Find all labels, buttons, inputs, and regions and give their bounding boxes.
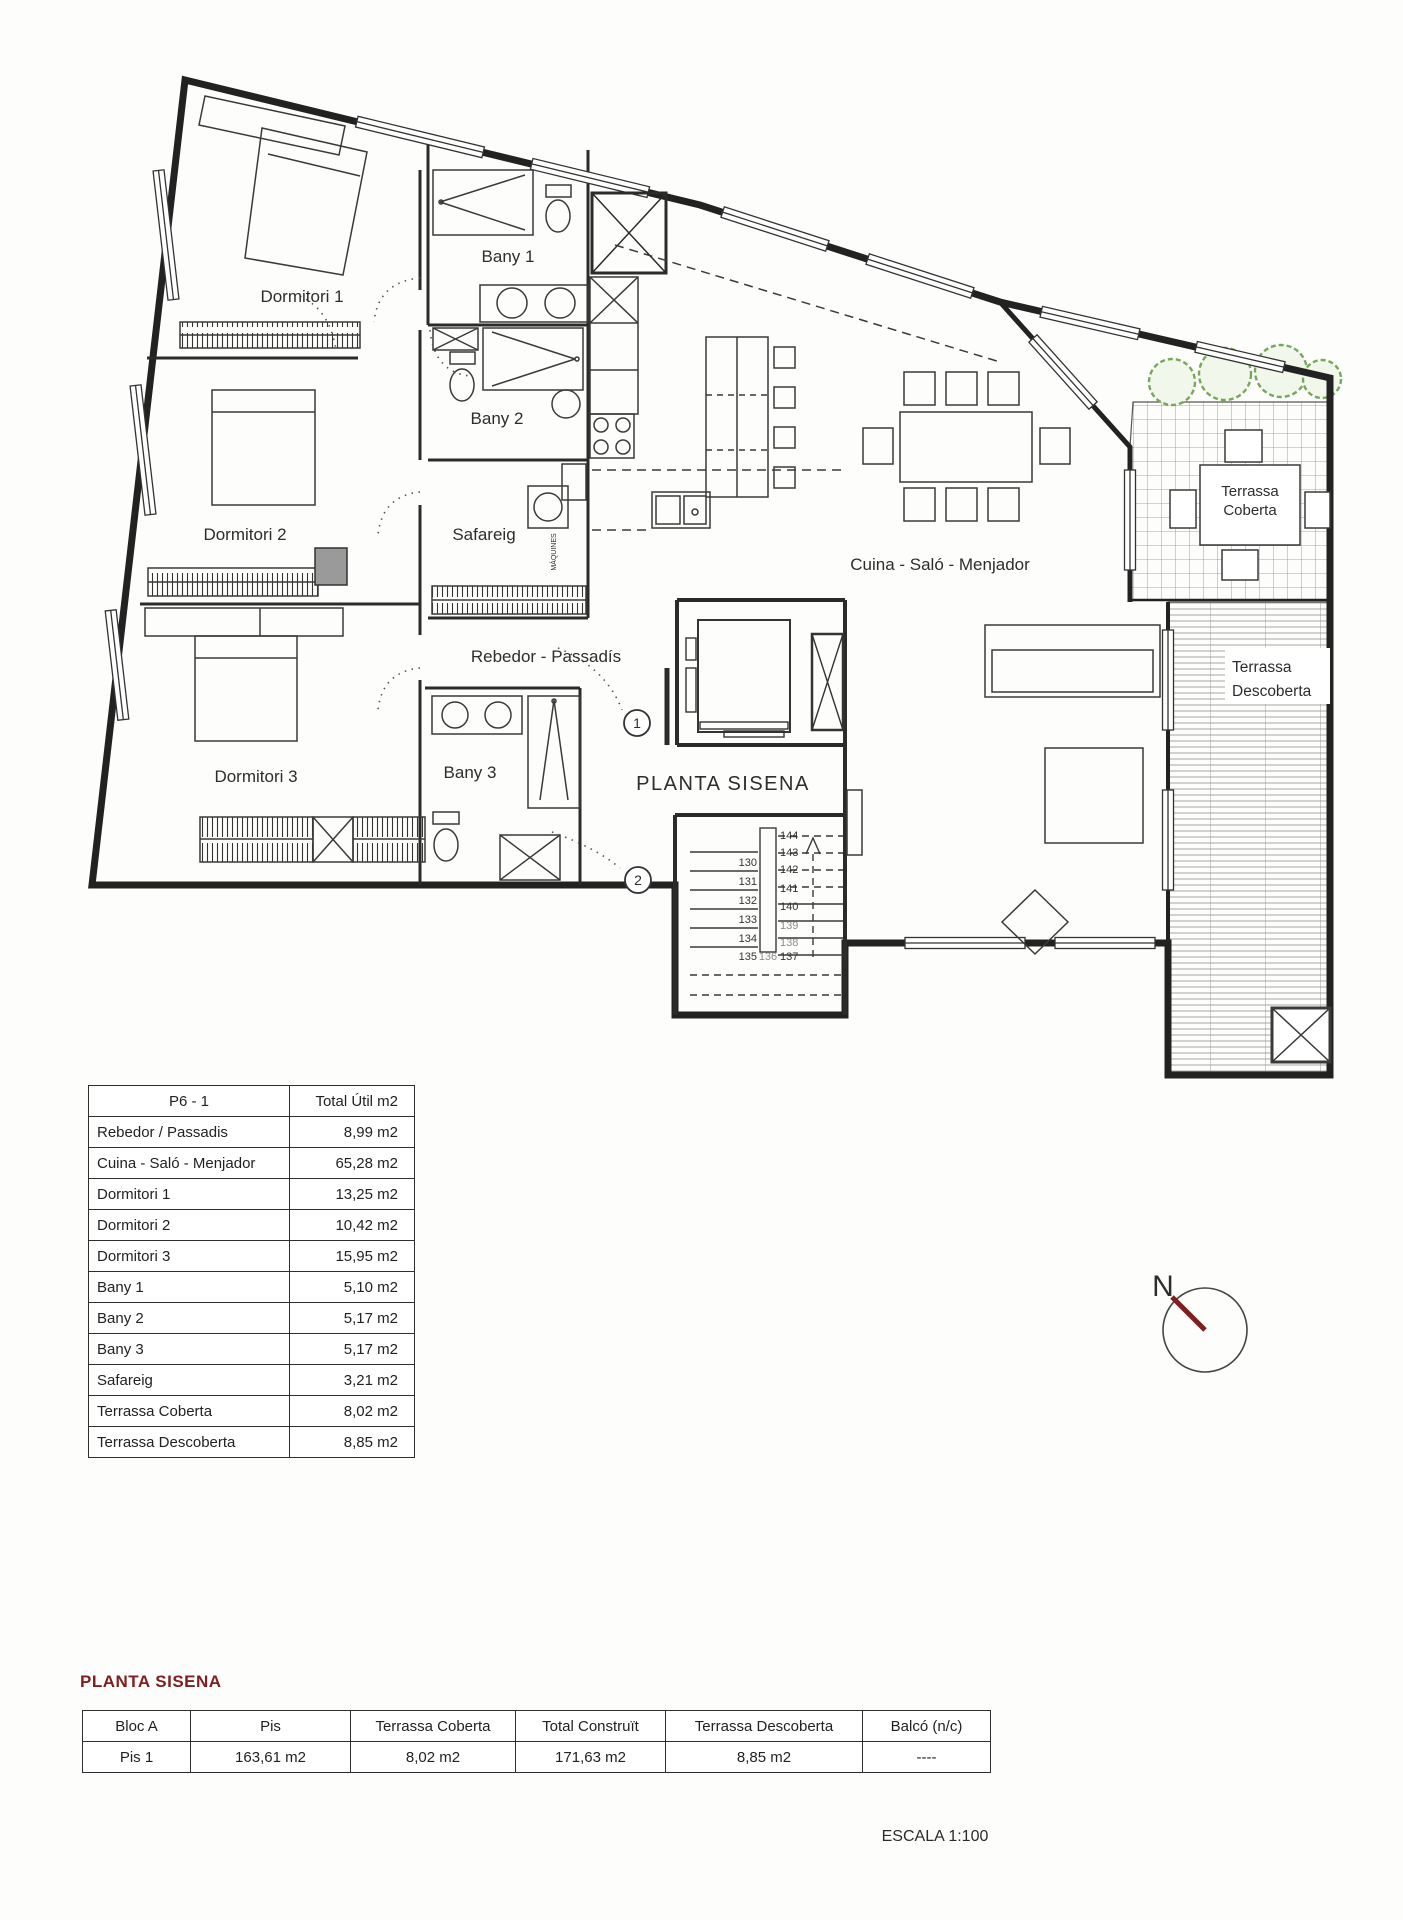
area-table-row: Dormitori 3 15,95 m2 xyxy=(89,1241,415,1272)
area-table-row: Dormitori 1 13,25 m2 xyxy=(89,1179,415,1210)
summary-header-cell: Terrassa Descoberta xyxy=(666,1711,863,1742)
toilet-icon xyxy=(433,812,459,824)
area-table-row: Rebedor / Passadis 8,99 m2 xyxy=(89,1117,415,1148)
stair-num: 140 xyxy=(780,901,798,913)
stair-num: 144 xyxy=(780,830,798,842)
stair-num: 142 xyxy=(780,864,798,876)
scale-label: ESCALA 1:100 xyxy=(840,1828,1030,1846)
room-area-cell: 5,17 m2 xyxy=(290,1334,415,1365)
staircase xyxy=(690,828,843,995)
elevator xyxy=(686,620,843,737)
room-name-cell: Cuina - Saló - Menjador xyxy=(89,1148,290,1179)
stair-num: 134 xyxy=(739,933,757,945)
summary-value-cell: 8,02 m2 xyxy=(351,1742,516,1773)
summary-value-cell: ---- xyxy=(863,1742,991,1773)
summary-heading: PLANTA SISENA xyxy=(80,1672,222,1692)
room-area-cell: 5,17 m2 xyxy=(290,1303,415,1334)
toilet-icon xyxy=(546,185,571,197)
dormitori-3-furniture xyxy=(145,608,425,862)
area-table: P6 - 1 Total Útil m2 Rebedor / Passadis … xyxy=(88,1085,415,1458)
room-name-cell: Terrassa Coberta xyxy=(89,1396,290,1427)
summary-value-cell: Pis 1 xyxy=(83,1742,191,1773)
sink-icon xyxy=(652,492,710,528)
room-area-cell: 15,95 m2 xyxy=(290,1241,415,1272)
area-table-total-header: Total Útil m2 xyxy=(290,1086,415,1117)
stair-num: 133 xyxy=(739,914,757,926)
ventilation-shaft xyxy=(592,193,666,273)
summary-header-row: Bloc APisTerrassa CobertaTotal Construït… xyxy=(83,1711,991,1742)
room-name-cell: Dormitori 2 xyxy=(89,1210,290,1241)
room-label-dormitori3: Dormitori 3 xyxy=(214,767,297,786)
room-name-cell: Dormitori 3 xyxy=(89,1241,290,1272)
area-table-row: Safareig 3,21 m2 xyxy=(89,1365,415,1396)
stair-num: 136 xyxy=(759,951,777,963)
summary-header-cell: Bloc A xyxy=(83,1711,191,1742)
summary-header-cell: Total Construït xyxy=(516,1711,666,1742)
summary-value-row: Pis 1163,61 m28,02 m2171,63 m28,85 m2---… xyxy=(83,1742,991,1773)
area-table-title: P6 - 1 xyxy=(89,1086,290,1117)
floor-plan-drawing: 130 131 132 133 134 135 136 137 138 139 … xyxy=(0,0,1403,1920)
stair-num: 138 xyxy=(780,937,798,949)
summary-table: Bloc APisTerrassa CobertaTotal Construït… xyxy=(82,1710,991,1773)
stair-num: 139 xyxy=(780,920,798,932)
room-label-bany3: Bany 3 xyxy=(444,763,497,782)
stair-num: 141 xyxy=(780,883,798,895)
area-table-row: Bany 2 5,17 m2 xyxy=(89,1303,415,1334)
area-table-row: Bany 3 5,17 m2 xyxy=(89,1334,415,1365)
room-name-cell: Bany 3 xyxy=(89,1334,290,1365)
bany-1-fixtures xyxy=(433,170,588,322)
room-area-cell: 65,28 m2 xyxy=(290,1148,415,1179)
svg-text:Descoberta: Descoberta xyxy=(1232,683,1312,700)
area-table-row: Cuina - Saló - Menjador 65,28 m2 xyxy=(89,1148,415,1179)
stair-num: 131 xyxy=(739,876,757,888)
room-area-cell: 5,10 m2 xyxy=(290,1272,415,1303)
room-label-dormitori2: Dormitori 2 xyxy=(203,525,286,544)
sink-icon xyxy=(552,390,580,418)
stair-num: 135 xyxy=(739,951,757,963)
room-area-cell: 10,42 m2 xyxy=(290,1210,415,1241)
room-label-rebedor: Rebedor - Passadís xyxy=(471,647,621,666)
compass: N xyxy=(1152,1270,1247,1372)
dining-furniture xyxy=(863,372,1070,521)
room-area-cell: 3,21 m2 xyxy=(290,1365,415,1396)
room-label-terrassa-coberta: Terrassa xyxy=(1221,483,1279,500)
room-area-cell: 8,99 m2 xyxy=(290,1117,415,1148)
stove-icon xyxy=(590,414,634,458)
section-markers: 1 2 xyxy=(624,710,651,893)
dormitori-1-furniture xyxy=(180,96,367,348)
stair-numbers: 130 131 132 133 134 135 136 137 138 139 … xyxy=(739,830,799,963)
maquines-label: MÀQUINES xyxy=(549,533,558,571)
living-furniture xyxy=(847,625,1160,954)
room-area-cell: 8,85 m2 xyxy=(290,1427,415,1458)
room-name-cell: Bany 2 xyxy=(89,1303,290,1334)
summary-value-cell: 8,85 m2 xyxy=(666,1742,863,1773)
dormitori-2-furniture xyxy=(148,390,347,596)
plan-floor-label: PLANTA SISENA xyxy=(636,773,810,795)
compass-north-label: N xyxy=(1152,1270,1174,1303)
room-name-cell: Rebedor / Passadis xyxy=(89,1117,290,1148)
room-label-safareig: Safareig xyxy=(452,525,515,544)
room-name-cell: Dormitori 1 xyxy=(89,1179,290,1210)
marker-2: 2 xyxy=(634,872,642,888)
area-table-row: Terrassa Coberta 8,02 m2 xyxy=(89,1396,415,1427)
room-area-cell: 8,02 m2 xyxy=(290,1396,415,1427)
room-label-bany1: Bany 1 xyxy=(482,247,535,266)
room-name-cell: Terrassa Descoberta xyxy=(89,1427,290,1458)
summary-value-cell: 171,63 m2 xyxy=(516,1742,666,1773)
stair-num: 143 xyxy=(780,847,798,859)
bany-2-fixtures xyxy=(433,328,583,418)
room-label-bany2: Bany 2 xyxy=(471,409,524,428)
summary-value-cell: 163,61 m2 xyxy=(191,1742,351,1773)
shaft-gray-box xyxy=(315,548,347,585)
summary-header-cell: Balcó (n/c) xyxy=(863,1711,991,1742)
svg-text:Coberta: Coberta xyxy=(1223,502,1277,519)
area-table-row: Terrassa Descoberta 8,85 m2 xyxy=(89,1427,415,1458)
summary-header-cell: Pis xyxy=(191,1711,351,1742)
room-label-terrassa-descoberta: Terrassa xyxy=(1232,659,1292,676)
stair-num: 130 xyxy=(739,857,757,869)
compass-needle xyxy=(1172,1297,1205,1330)
summary-header-cell: Terrassa Coberta xyxy=(351,1711,516,1742)
room-label-cuina: Cuina - Saló - Menjador xyxy=(850,555,1030,574)
room-name-cell: Bany 1 xyxy=(89,1272,290,1303)
room-name-cell: Safareig xyxy=(89,1365,290,1396)
room-area-cell: 13,25 m2 xyxy=(290,1179,415,1210)
sofa-icon xyxy=(985,625,1160,697)
area-table-header-row: P6 - 1 Total Útil m2 xyxy=(89,1086,415,1117)
area-table-row: Bany 1 5,10 m2 xyxy=(89,1272,415,1303)
floor-plan-sheet: 130 131 132 133 134 135 136 137 138 139 … xyxy=(0,0,1403,1920)
stair-num: 132 xyxy=(739,895,757,907)
area-table-row: Dormitori 2 10,42 m2 xyxy=(89,1210,415,1241)
marker-1: 1 xyxy=(633,715,641,731)
toilet-icon xyxy=(450,352,475,364)
bany-3-fixtures xyxy=(432,696,580,880)
room-label-dormitori1: Dormitori 1 xyxy=(260,287,343,306)
stair-num: 137 xyxy=(780,951,798,963)
